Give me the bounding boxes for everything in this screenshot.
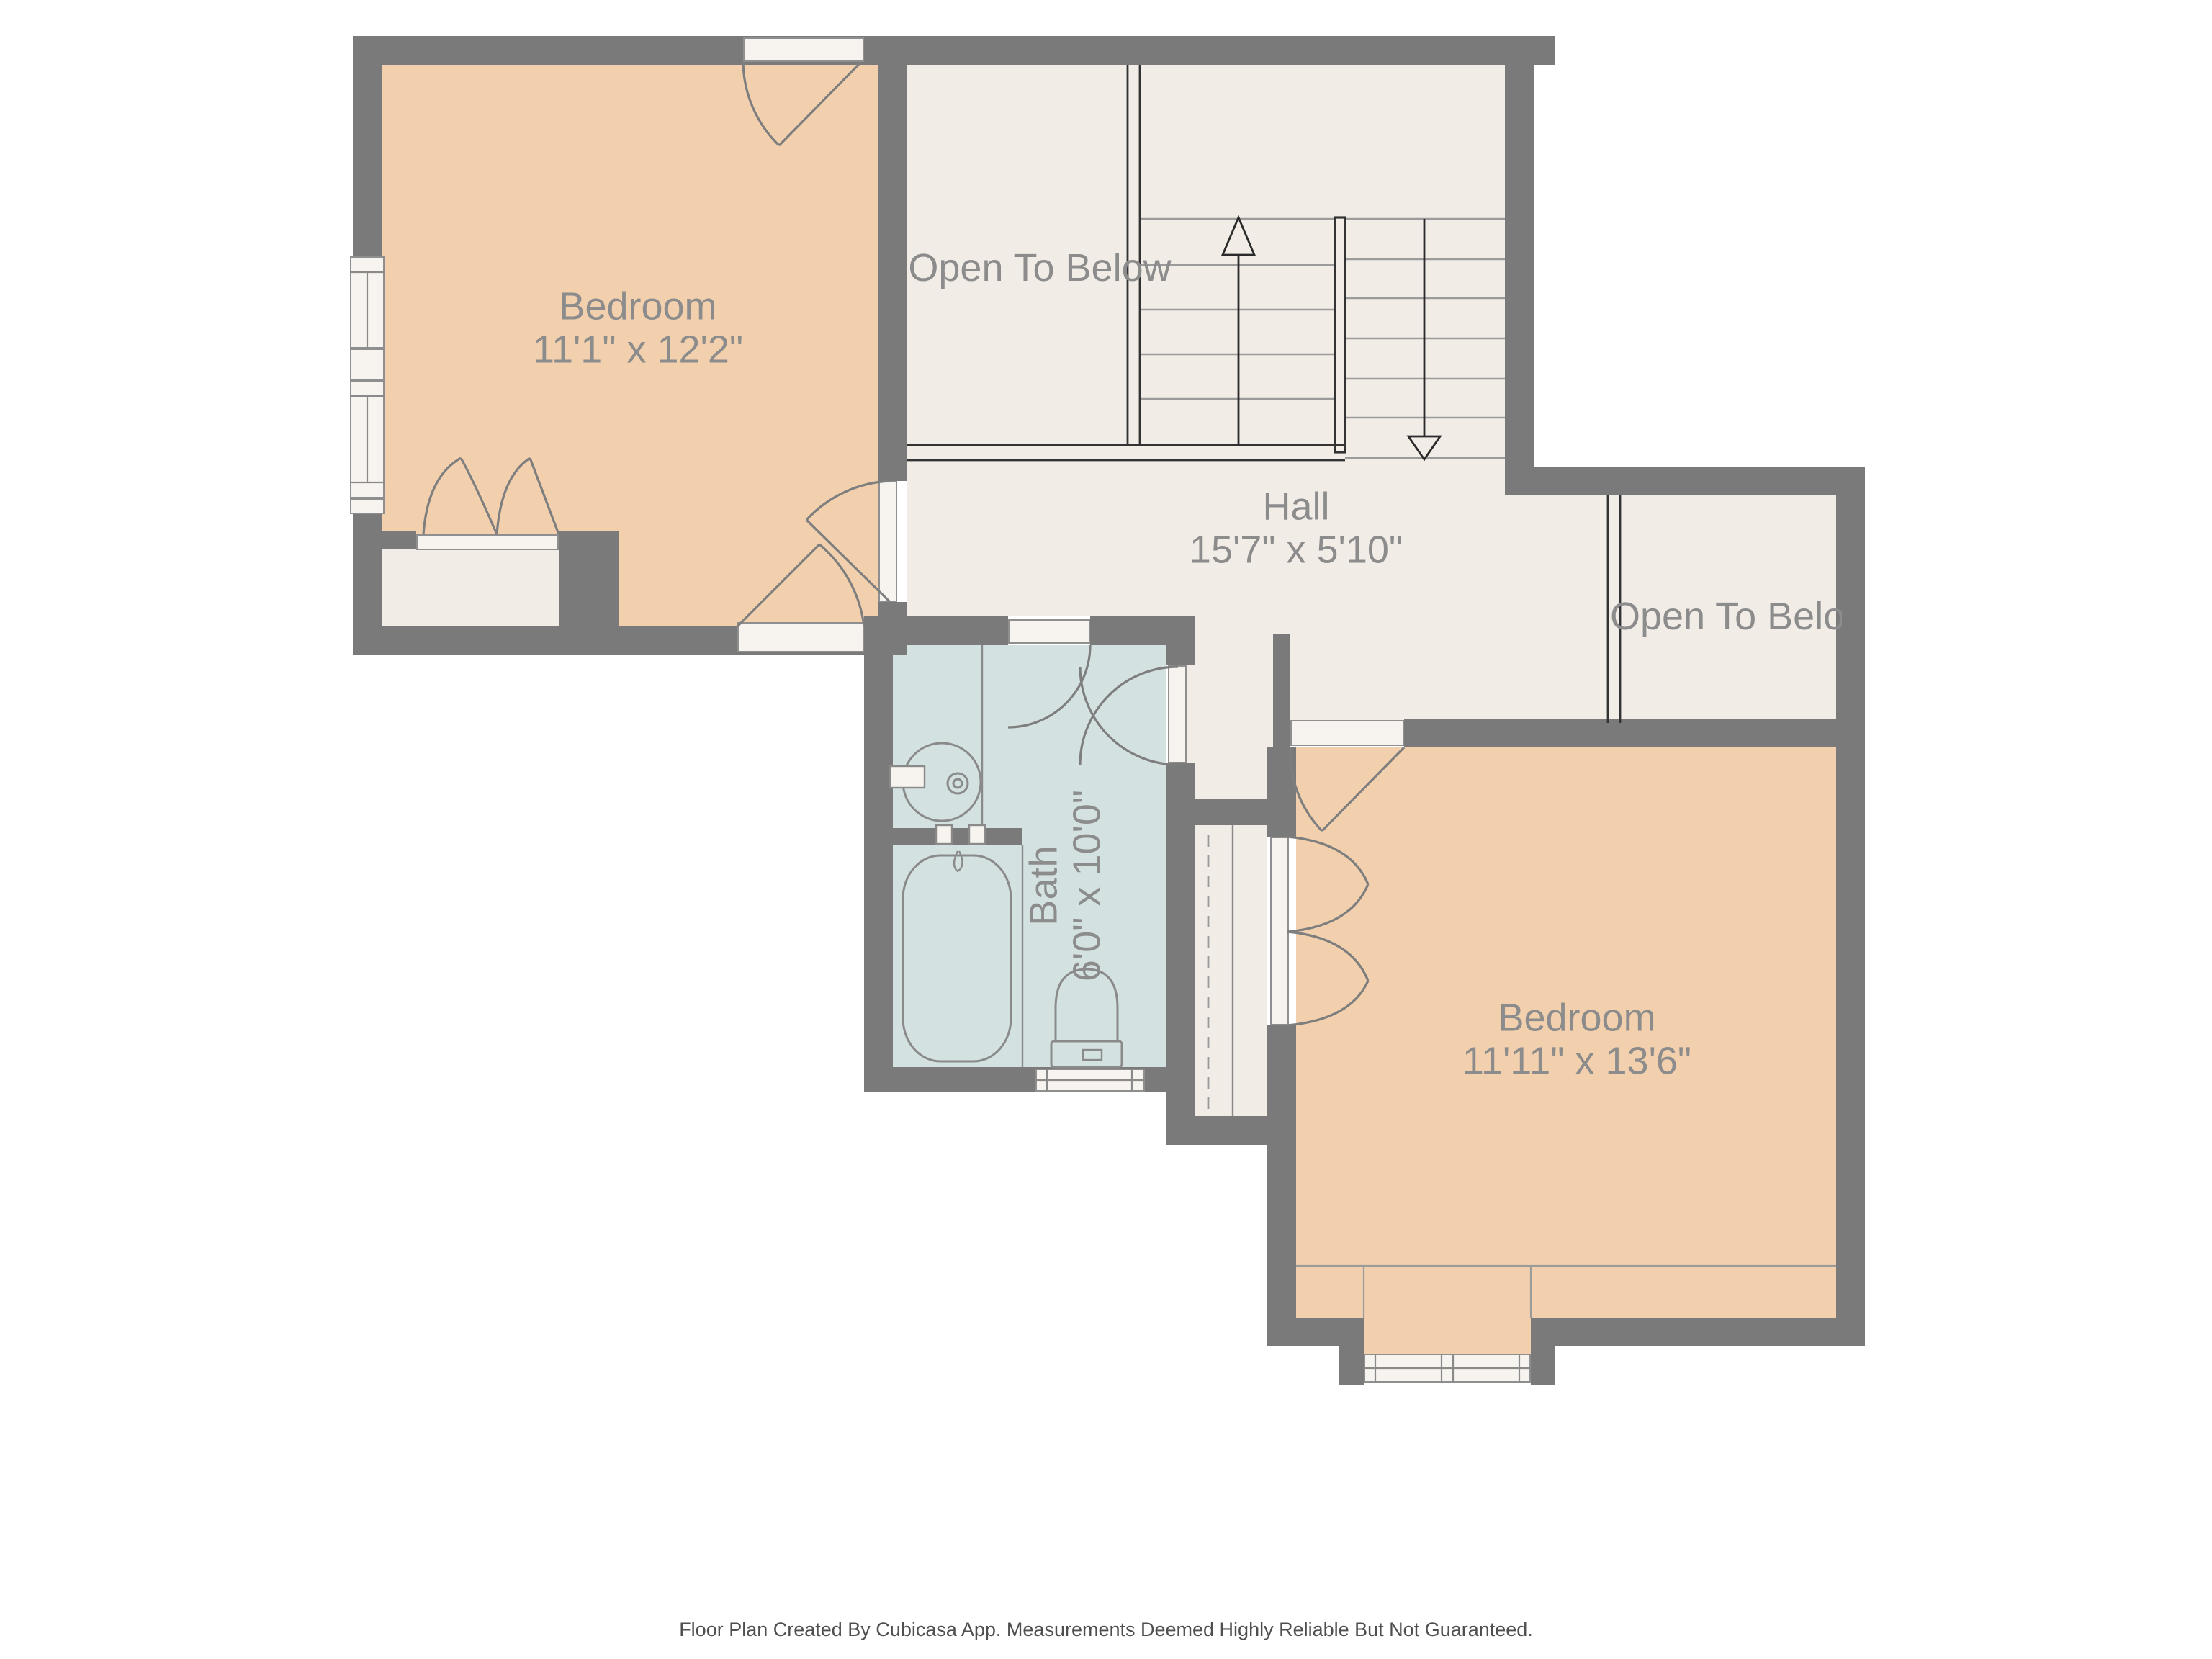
bedroom2-dims: 11'11" x 13'6" xyxy=(1462,1040,1691,1083)
wall-bay-left xyxy=(1339,1318,1364,1385)
wall-top xyxy=(353,36,1555,65)
wall-bedroom2-left-lower xyxy=(1267,1025,1296,1346)
wall-top-right xyxy=(1505,467,1865,495)
footer-disclaimer: Floor Plan Created By Cubicasa App. Meas… xyxy=(0,1619,2212,1640)
bedroom1-label: Bedroom 11'1" x 12'2" xyxy=(533,285,743,372)
bedroom2-closet-floor xyxy=(1195,825,1267,1116)
wall-sink-stub xyxy=(893,828,1022,845)
bedroom2-door-sill xyxy=(1290,720,1404,746)
bedroom2-bay-floor xyxy=(1364,1318,1531,1355)
wall-stairwell-right xyxy=(1505,36,1534,495)
window-left-sill-block xyxy=(350,349,385,380)
hall-dims: 15'7" x 5'10" xyxy=(1190,529,1403,572)
bedroom1-dims: 11'1" x 12'2" xyxy=(533,328,743,372)
bedroom2-name: Bedroom xyxy=(1462,997,1691,1040)
wall-hall-bath-left xyxy=(864,616,1008,645)
bedroom1-name: Bedroom xyxy=(533,285,743,328)
wall-bath-left xyxy=(864,645,893,1092)
bedroom1-right-door-leaf xyxy=(878,481,897,602)
open-to-below-right-label: Open To Below xyxy=(1610,592,1842,641)
wall-bedroom1-right-upper xyxy=(878,36,907,481)
bedroom1-closet-floor xyxy=(382,549,588,626)
window-left-2 xyxy=(350,380,385,498)
bath-window xyxy=(1035,1069,1145,1092)
wall-closet1-right-chunk xyxy=(559,531,619,641)
bedroom1-bottom-threshold xyxy=(737,622,864,652)
wall-bath-bottom xyxy=(864,1067,1195,1092)
bedroom1-closet-sill xyxy=(416,534,559,550)
bedroom2-closet-door-leaf xyxy=(1270,837,1289,1025)
wall-bay-right xyxy=(1531,1318,1555,1385)
open-to-below-top-label: Open To Below xyxy=(908,246,1171,289)
bath-label: Bath 6'0" x 10'0" xyxy=(1022,790,1110,981)
bath-door-leaf xyxy=(1168,665,1187,763)
wall-bedroom2-top-left-stub xyxy=(1273,719,1290,747)
bath-dims: 6'0" x 10'0" xyxy=(1066,790,1109,981)
wall-bedroom2-top xyxy=(1404,719,1865,747)
wall-bedroom2-bottom-right xyxy=(1534,1318,1865,1346)
bath-door-sill xyxy=(1008,619,1090,644)
bay-window xyxy=(1364,1354,1531,1382)
hall-name: Hall xyxy=(1190,485,1403,529)
bath-name: Bath xyxy=(1022,790,1066,981)
window-left-1 xyxy=(350,256,385,349)
bedroom1-top-door-sill xyxy=(743,37,864,62)
hall-label: Hall 15'7" x 5'10" xyxy=(1190,485,1403,572)
window-left-endcap xyxy=(350,498,385,514)
wall-closet1-left-stub xyxy=(382,531,416,549)
wall-bedroom2-bottom-left xyxy=(1267,1318,1346,1346)
bedroom2-label: Bedroom 11'11" x 13'6" xyxy=(1462,997,1691,1084)
wall-hall-bath-right xyxy=(1090,616,1195,645)
floor-plan-page: Bedroom 11'1" x 12'2" Open To Below Hall… xyxy=(0,0,2212,1659)
wall-bath-right-upper xyxy=(1166,645,1195,665)
wall-bedroom2-left-upper xyxy=(1267,747,1296,837)
